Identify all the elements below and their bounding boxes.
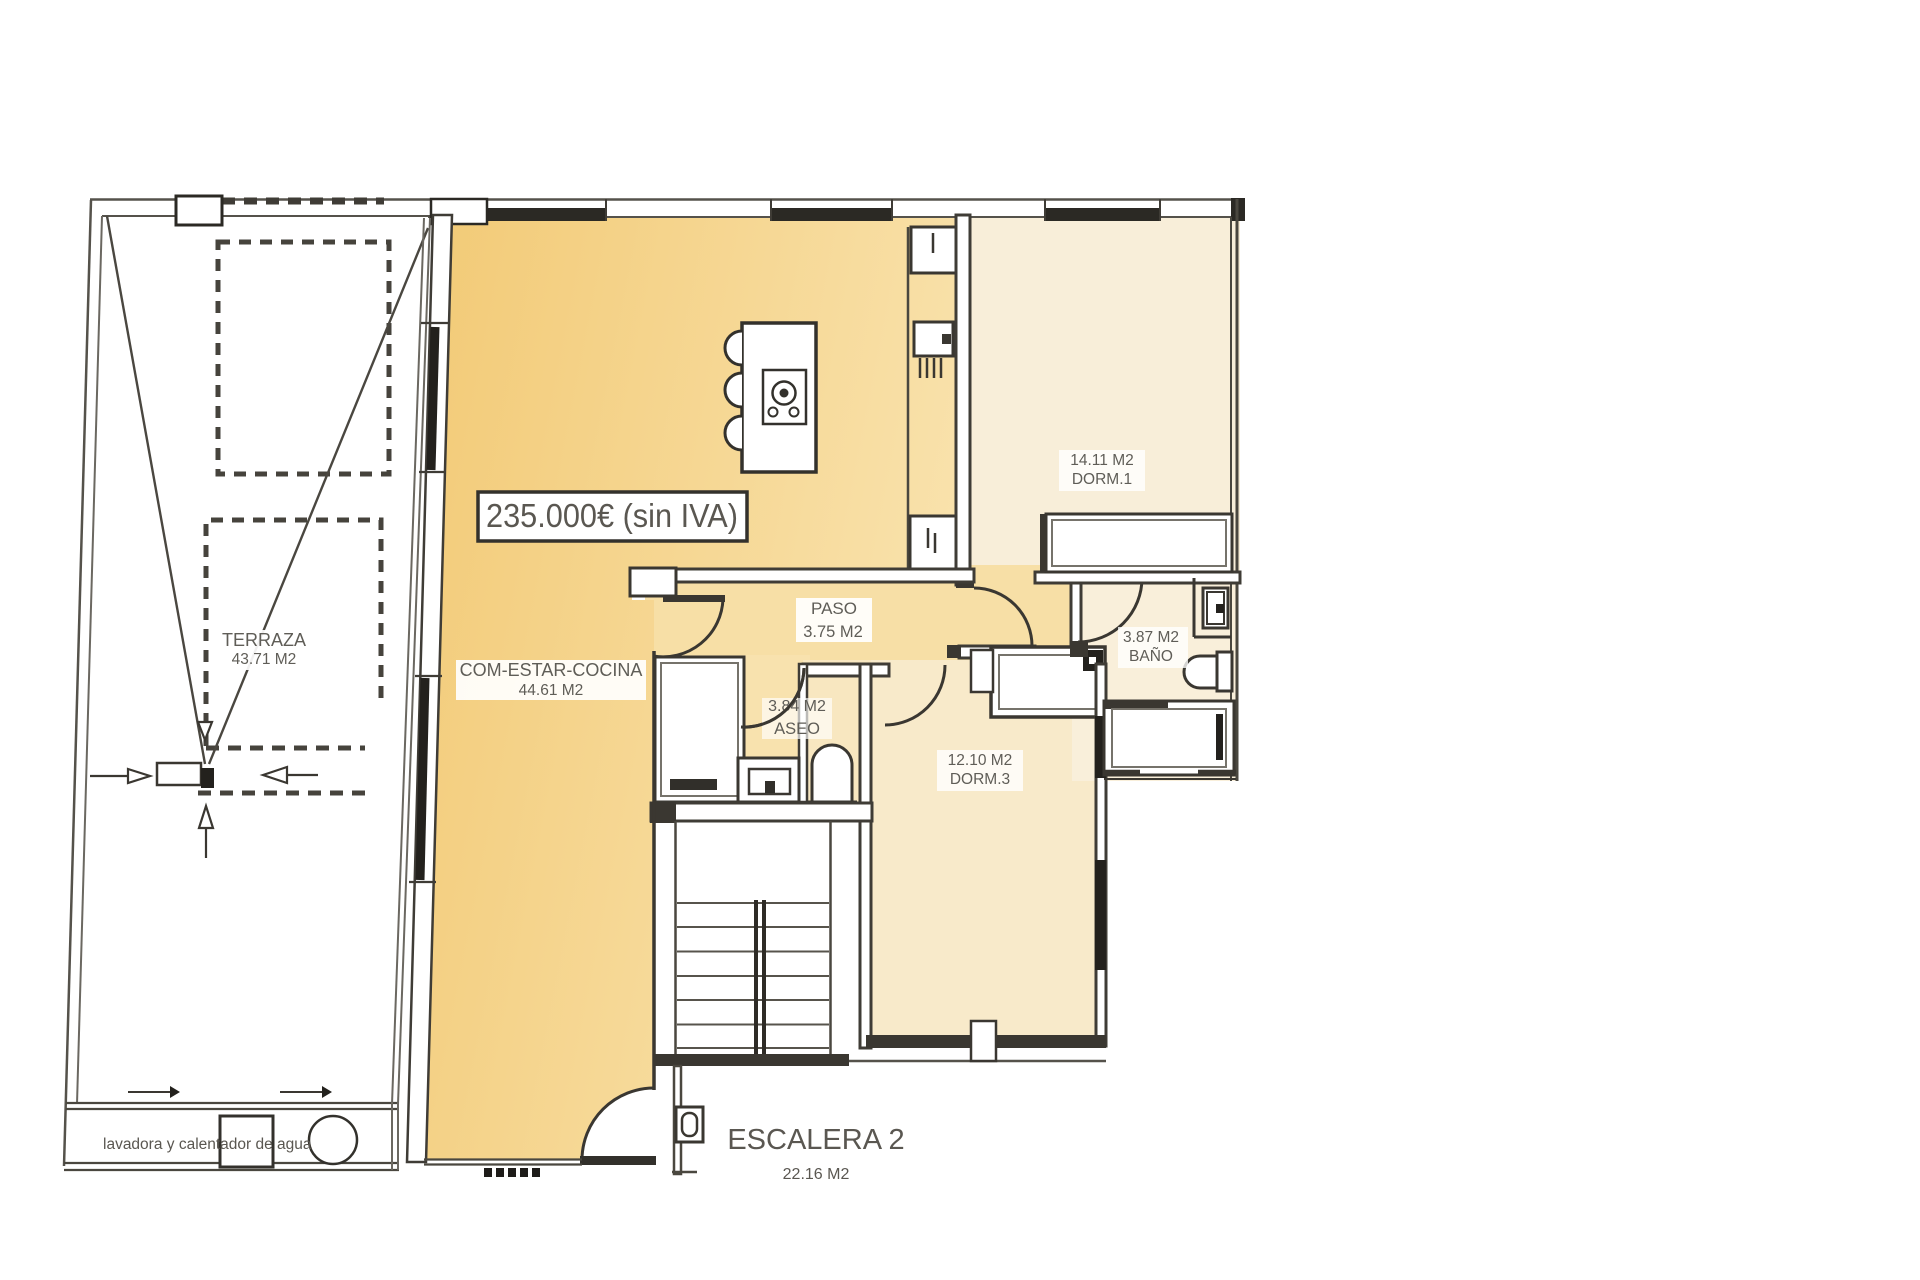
- svg-text:TERRAZA: TERRAZA: [222, 630, 306, 650]
- svg-text:44.61 M2: 44.61 M2: [519, 682, 584, 699]
- svg-text:3.84 M2: 3.84 M2: [768, 698, 826, 715]
- svg-text:43.71 M2: 43.71 M2: [232, 651, 297, 668]
- svg-text:3.87 M2: 3.87 M2: [1123, 629, 1179, 646]
- svg-text:14.11 M2: 14.11 M2: [1070, 452, 1133, 469]
- svg-text:DORM.1: DORM.1: [1072, 471, 1132, 488]
- svg-text:DORM.3: DORM.3: [950, 771, 1010, 788]
- svg-text:PASO: PASO: [811, 599, 857, 618]
- svg-text:22.16 M2: 22.16 M2: [783, 1166, 850, 1183]
- svg-text:235.000€ (sin IVA): 235.000€ (sin IVA): [486, 497, 738, 534]
- svg-text:ESCALERA 2: ESCALERA 2: [727, 1124, 904, 1156]
- svg-text:ASEO: ASEO: [774, 720, 820, 738]
- svg-text:12.10 M2: 12.10 M2: [948, 752, 1013, 769]
- svg-text:lavadora y calentador de agua: lavadora y calentador de agua: [103, 1136, 312, 1153]
- svg-text:BAÑO: BAÑO: [1129, 648, 1173, 665]
- svg-text:COM-ESTAR-COCINA: COM-ESTAR-COCINA: [460, 660, 643, 680]
- svg-text:3.75 M2: 3.75 M2: [803, 623, 863, 641]
